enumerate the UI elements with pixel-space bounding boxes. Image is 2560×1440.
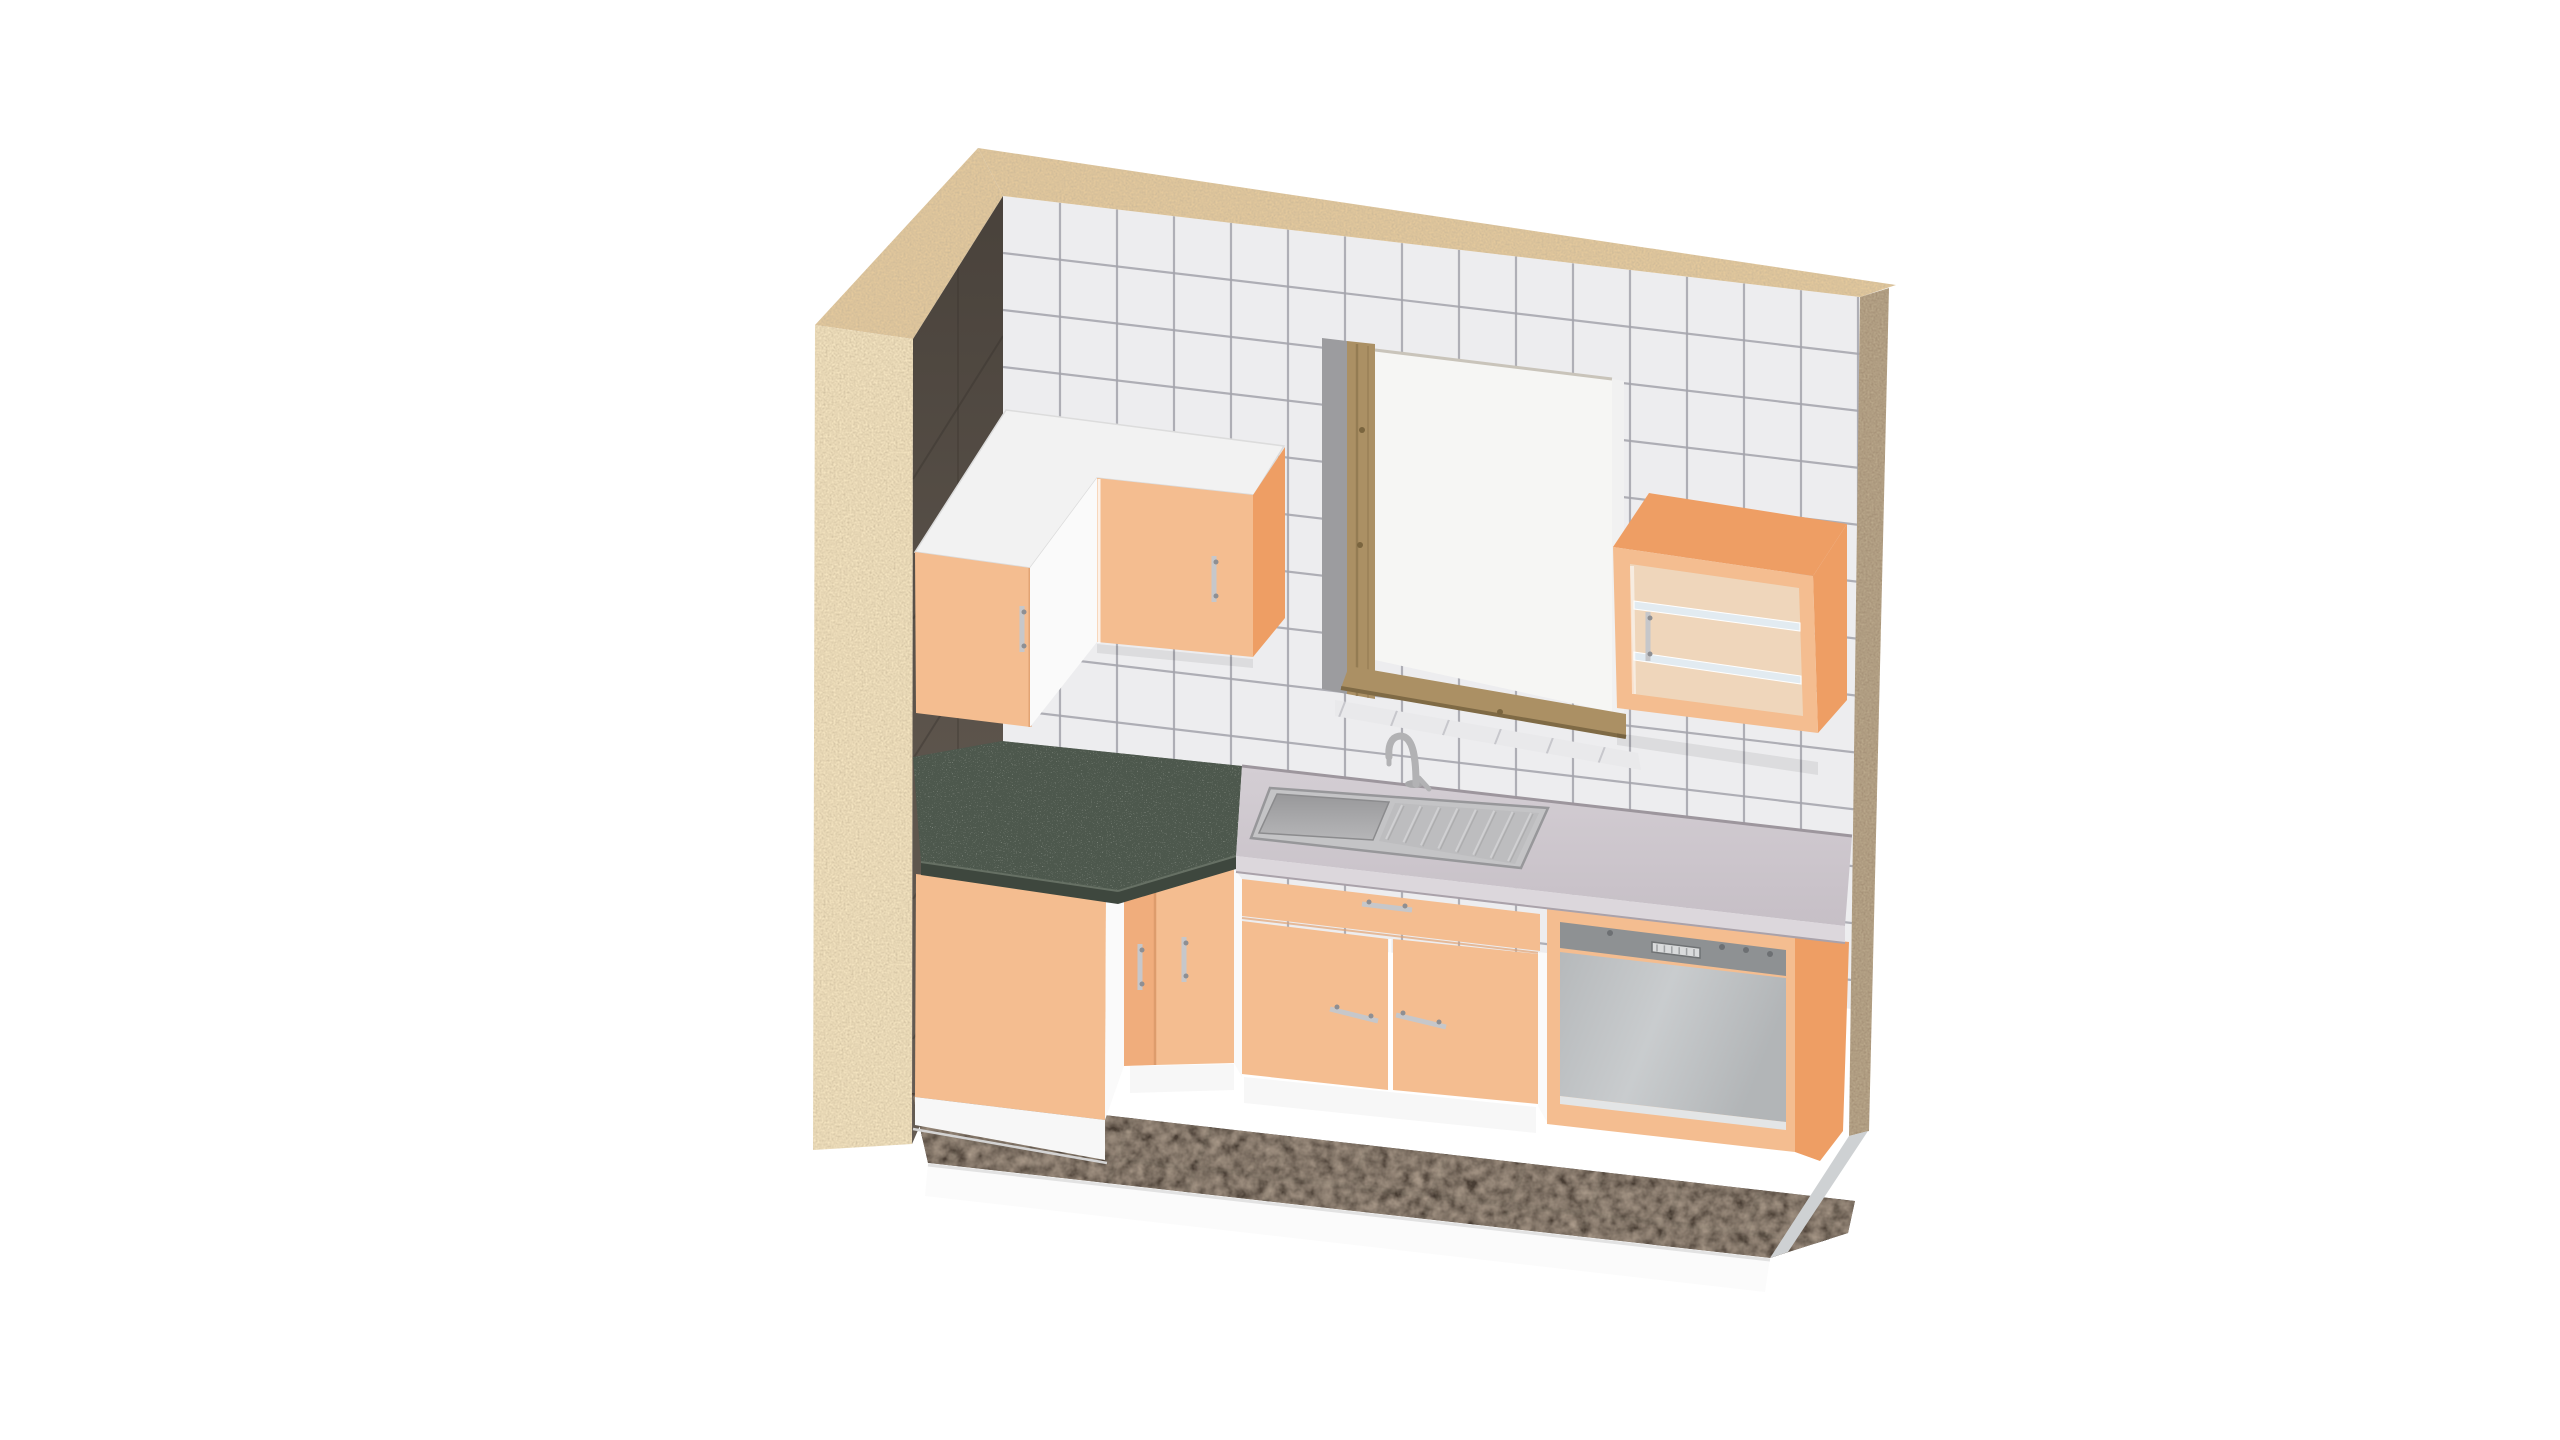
- dishwasher-knob: [1743, 947, 1749, 953]
- dishwasher-knob: [1767, 951, 1773, 957]
- sink-cabinet-door-left: [1242, 921, 1388, 1090]
- window-jamb-left: [1347, 341, 1375, 699]
- dishwasher-knob: [1719, 944, 1725, 950]
- cabinet-gap-white: [1234, 868, 1242, 1077]
- plinth: [1130, 1064, 1234, 1093]
- dishwasher-knob: [1607, 930, 1613, 936]
- render-canvas: [0, 0, 2560, 1440]
- sink-basin: [1259, 794, 1389, 840]
- kitchen-3d-render: [0, 0, 2560, 1440]
- dishwasher-door: [1560, 952, 1786, 1122]
- wood-knot: [1357, 542, 1363, 548]
- wood-knot: [1497, 709, 1503, 715]
- window-pane: [1375, 350, 1612, 712]
- wood-knot: [1359, 427, 1365, 433]
- left-base-side-panel: [915, 874, 1106, 1120]
- left-wall-front: [813, 325, 913, 1150]
- window: [1322, 338, 1626, 737]
- glass-edge-highlight: [1632, 566, 1634, 694]
- corner-base-door-right: [1155, 868, 1234, 1065]
- glass-wall-cabinet: [1613, 493, 1847, 733]
- wall-cabinet-door-left: [915, 552, 1030, 727]
- dishwasher: [1547, 908, 1795, 1152]
- cabinet-gap-white: [1538, 952, 1547, 1122]
- glass-reflection: [1630, 564, 1803, 716]
- window-reveal: [1322, 338, 1347, 694]
- wall-cabinet-door-front: [1097, 478, 1253, 657]
- right-end-panel: [1795, 936, 1849, 1161]
